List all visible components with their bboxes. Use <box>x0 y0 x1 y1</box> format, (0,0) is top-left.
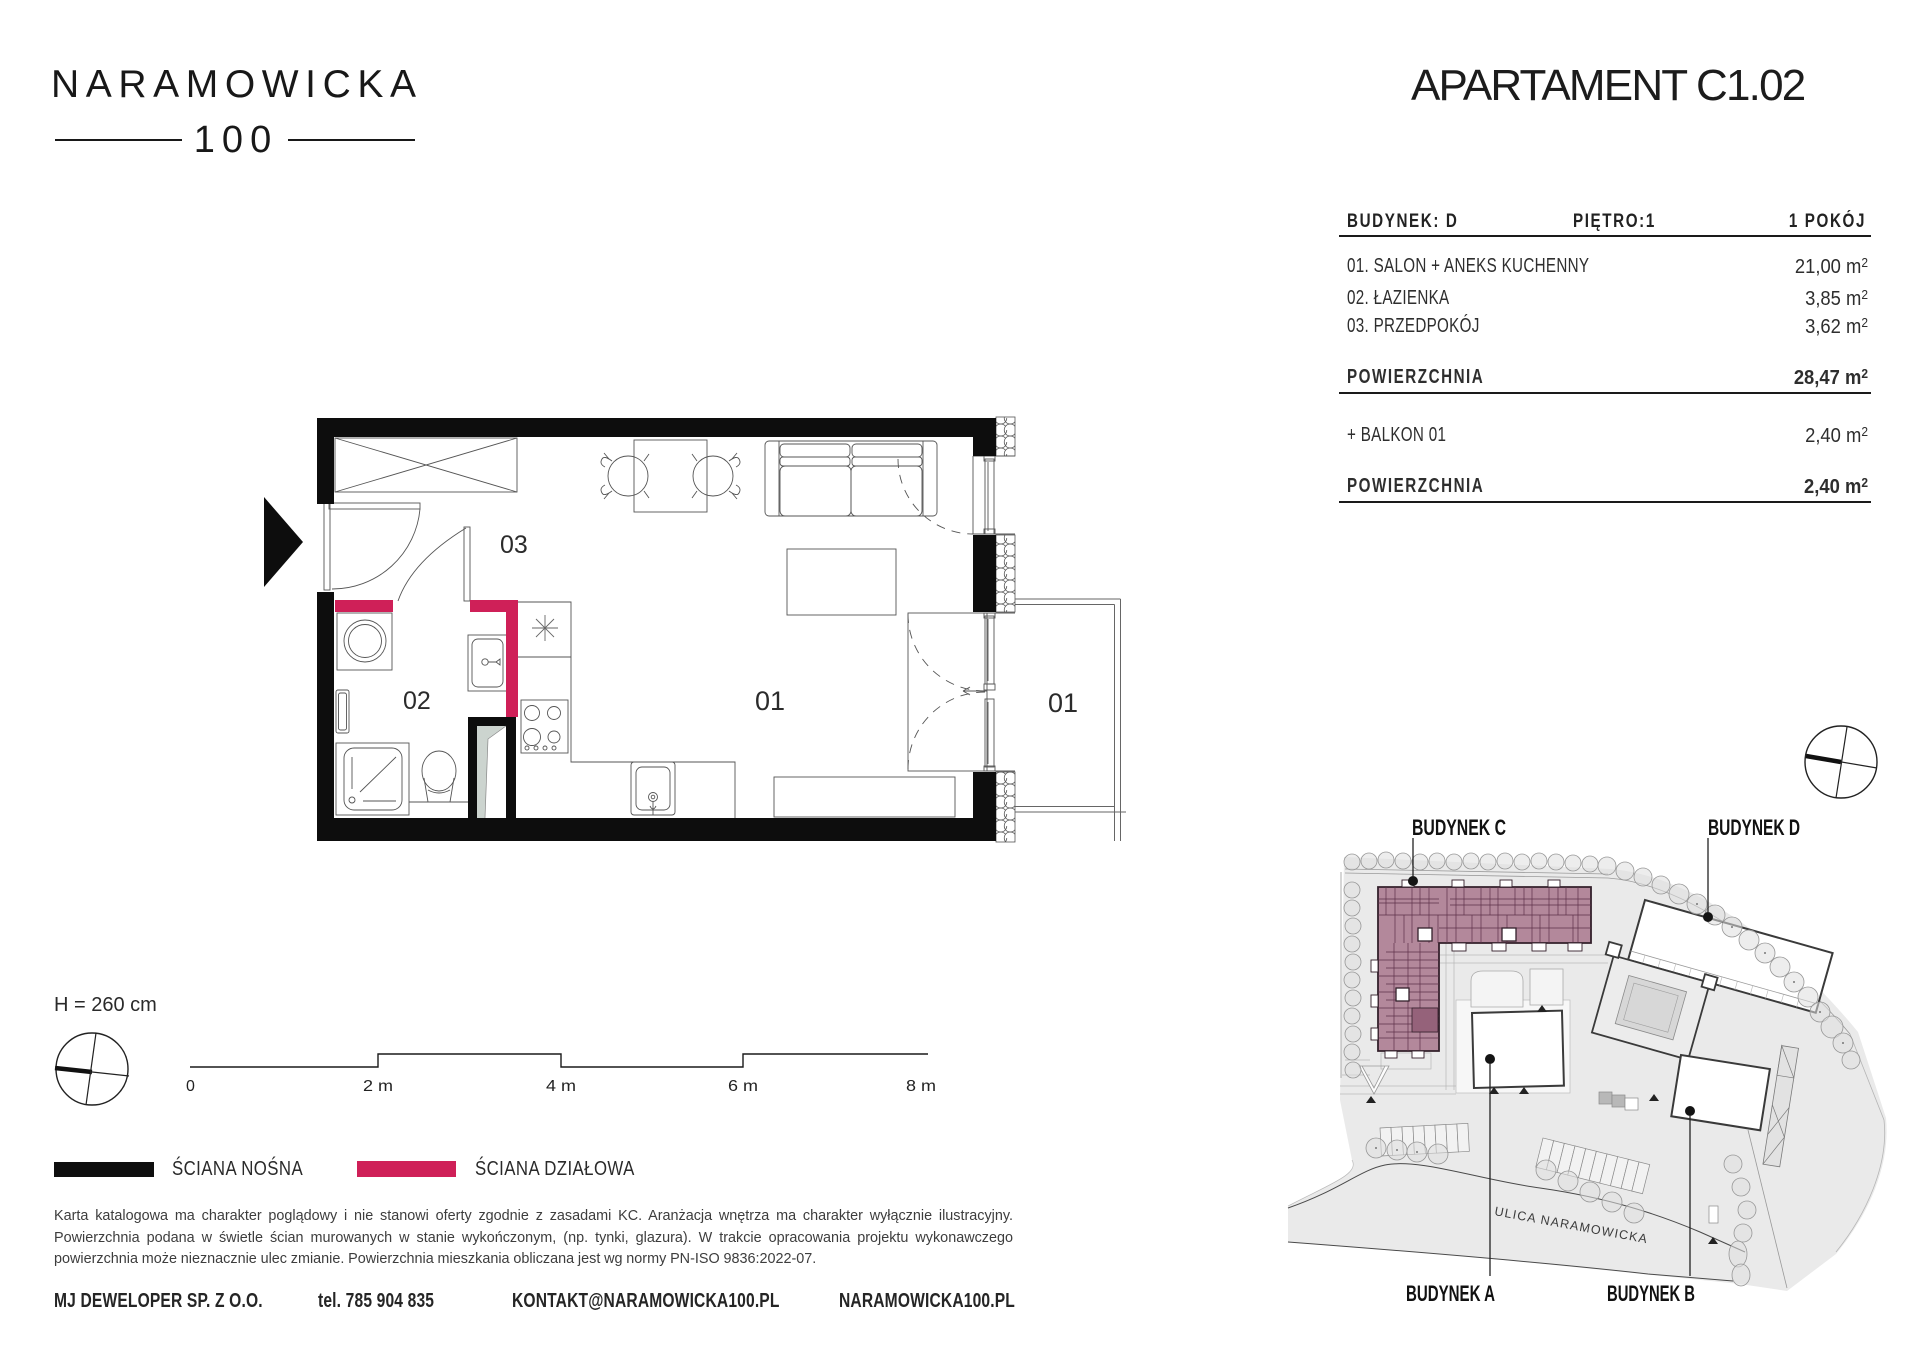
svg-text:2 m: 2 m <box>363 1078 393 1095</box>
svg-text:6 m: 6 m <box>728 1078 758 1095</box>
svg-text:BUDYNEK C: BUDYNEK C <box>1412 815 1506 840</box>
svg-text:BUDYNEK D: BUDYNEK D <box>1708 815 1800 840</box>
svg-text:BUDYNEK A: BUDYNEK A <box>1406 1281 1495 1306</box>
svg-text:02: 02 <box>403 687 431 715</box>
svg-text:01: 01 <box>755 686 785 716</box>
svg-text:03: 03 <box>500 531 528 559</box>
svg-text:01: 01 <box>1048 688 1078 718</box>
svg-text:0: 0 <box>186 1078 195 1095</box>
svg-text:4 m: 4 m <box>546 1078 576 1095</box>
svg-text:8 m: 8 m <box>906 1078 936 1095</box>
svg-text:BUDYNEK B: BUDYNEK B <box>1607 1281 1695 1306</box>
